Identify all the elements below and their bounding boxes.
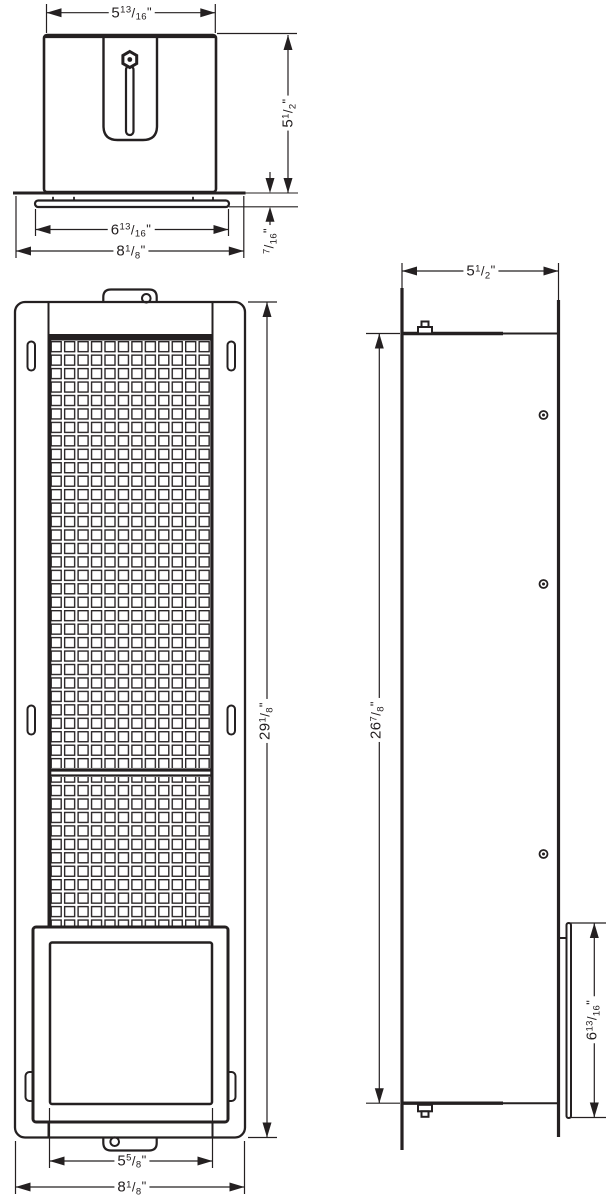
dim-label-flange-thickness: 7/16" (262, 225, 277, 257)
hex-screw-center (127, 57, 132, 62)
trim-plate (35, 201, 229, 208)
dim-label-trim-plate-width: 613/16" (108, 222, 155, 237)
dim-label-front-height: 291/8" (258, 699, 273, 743)
bottom-bolt-head (422, 1111, 429, 1117)
dim-label-front-overall-width: 81/8" (114, 1180, 149, 1195)
drawing-linework (0, 0, 616, 1199)
top-view (13, 4, 298, 258)
mounting-slot-mid-left (28, 706, 36, 735)
basket-top-bar (49, 334, 213, 341)
wire-basket-upper (50, 340, 213, 768)
back-wall-screw-holes (540, 411, 548, 858)
dim-label-top-width: 513/16" (108, 5, 155, 20)
adjustment-slot (126, 66, 134, 135)
dim-flange-thickness (266, 172, 275, 226)
front-view (15, 290, 277, 1195)
dim-label-door-width: 55/8" (114, 1153, 149, 1168)
mounting-slot-top-left (28, 342, 36, 371)
mounting-slot-top-right (228, 342, 236, 371)
dim-label-side-body-height: 267/8" (369, 698, 384, 742)
dim-label-side-depth: 51/2" (463, 264, 498, 279)
dim-label-top-overall-width: 81/8" (113, 244, 148, 259)
bottom-tab-hole (110, 1137, 119, 1146)
technical-drawing-page: 513/16" 51/2" 7/16" 613/16" 81/8" 291/8"… (0, 0, 616, 1199)
top-bolt-base (418, 327, 432, 334)
door-edge-bar (567, 923, 572, 1118)
door-panel (50, 943, 212, 1105)
dim-label-side-door-height: 613/16" (584, 997, 599, 1044)
mounting-slot-mid-right (228, 706, 236, 735)
side-view (366, 263, 606, 1150)
wire-basket-lower (50, 777, 213, 928)
dim-label-top-depth: 51/2" (281, 95, 296, 130)
